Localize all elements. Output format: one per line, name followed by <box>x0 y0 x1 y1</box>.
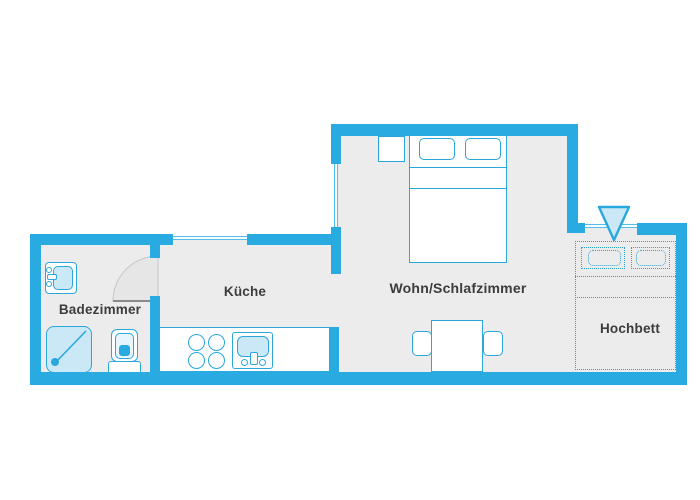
loft-pillow-inner <box>588 250 621 266</box>
sink-knob-icon <box>241 359 248 366</box>
room-label-kueche: Küche <box>224 284 266 299</box>
wall-bath-divider-lower <box>150 296 160 374</box>
wall-bath-divider-upper <box>150 234 160 258</box>
stove-burner-icon <box>208 352 225 369</box>
dining-table-icon <box>431 320 483 372</box>
room-label-hochbett: Hochbett <box>600 321 660 336</box>
stove-burner-icon <box>188 334 205 351</box>
pillow-icon <box>465 138 501 160</box>
tap-icon <box>46 267 52 273</box>
window-icon <box>173 236 247 240</box>
wall-top-kitchen <box>247 234 341 245</box>
kitchen-faucet-icon <box>250 352 258 365</box>
chair-icon <box>412 331 432 356</box>
shower-glass-line <box>46 326 92 373</box>
sink-spout-icon <box>47 274 57 280</box>
bed-headboard-line <box>410 167 506 168</box>
room-label-badezimmer: Badezimmer <box>59 302 141 317</box>
loft-pillow-inner <box>636 250 666 266</box>
wall-bottom <box>30 372 687 385</box>
window-icon <box>334 164 338 227</box>
stove-burner-icon <box>188 352 205 369</box>
bed-blanket-line <box>410 188 506 189</box>
nightstand-icon <box>378 136 405 162</box>
wall-living-right <box>567 124 578 233</box>
wall-kitchen-living-lower <box>329 327 339 372</box>
sink-knob-icon <box>259 359 266 366</box>
room-label-wohn-schlafzimmer: Wohn/Schlafzimmer <box>390 280 527 296</box>
floor-plan: Badezimmer Küche Wohn/Schlafzimmer Hochb… <box>0 0 700 500</box>
wall-right <box>676 223 687 385</box>
wall-living-right-foot <box>567 223 585 233</box>
loft-blanket-line <box>575 297 676 298</box>
wall-left <box>30 234 41 385</box>
toilet-seat-icon <box>119 345 130 356</box>
loft-blanket-line <box>575 276 676 277</box>
wall-living-left-mid <box>331 227 341 274</box>
down-arrow-icon <box>597 205 631 243</box>
tap-icon <box>46 281 52 287</box>
wall-living-top <box>331 124 578 136</box>
chair-icon <box>483 331 503 356</box>
pillow-icon <box>419 138 455 160</box>
stove-burner-icon <box>208 334 225 351</box>
shower-drain-icon <box>51 358 59 366</box>
